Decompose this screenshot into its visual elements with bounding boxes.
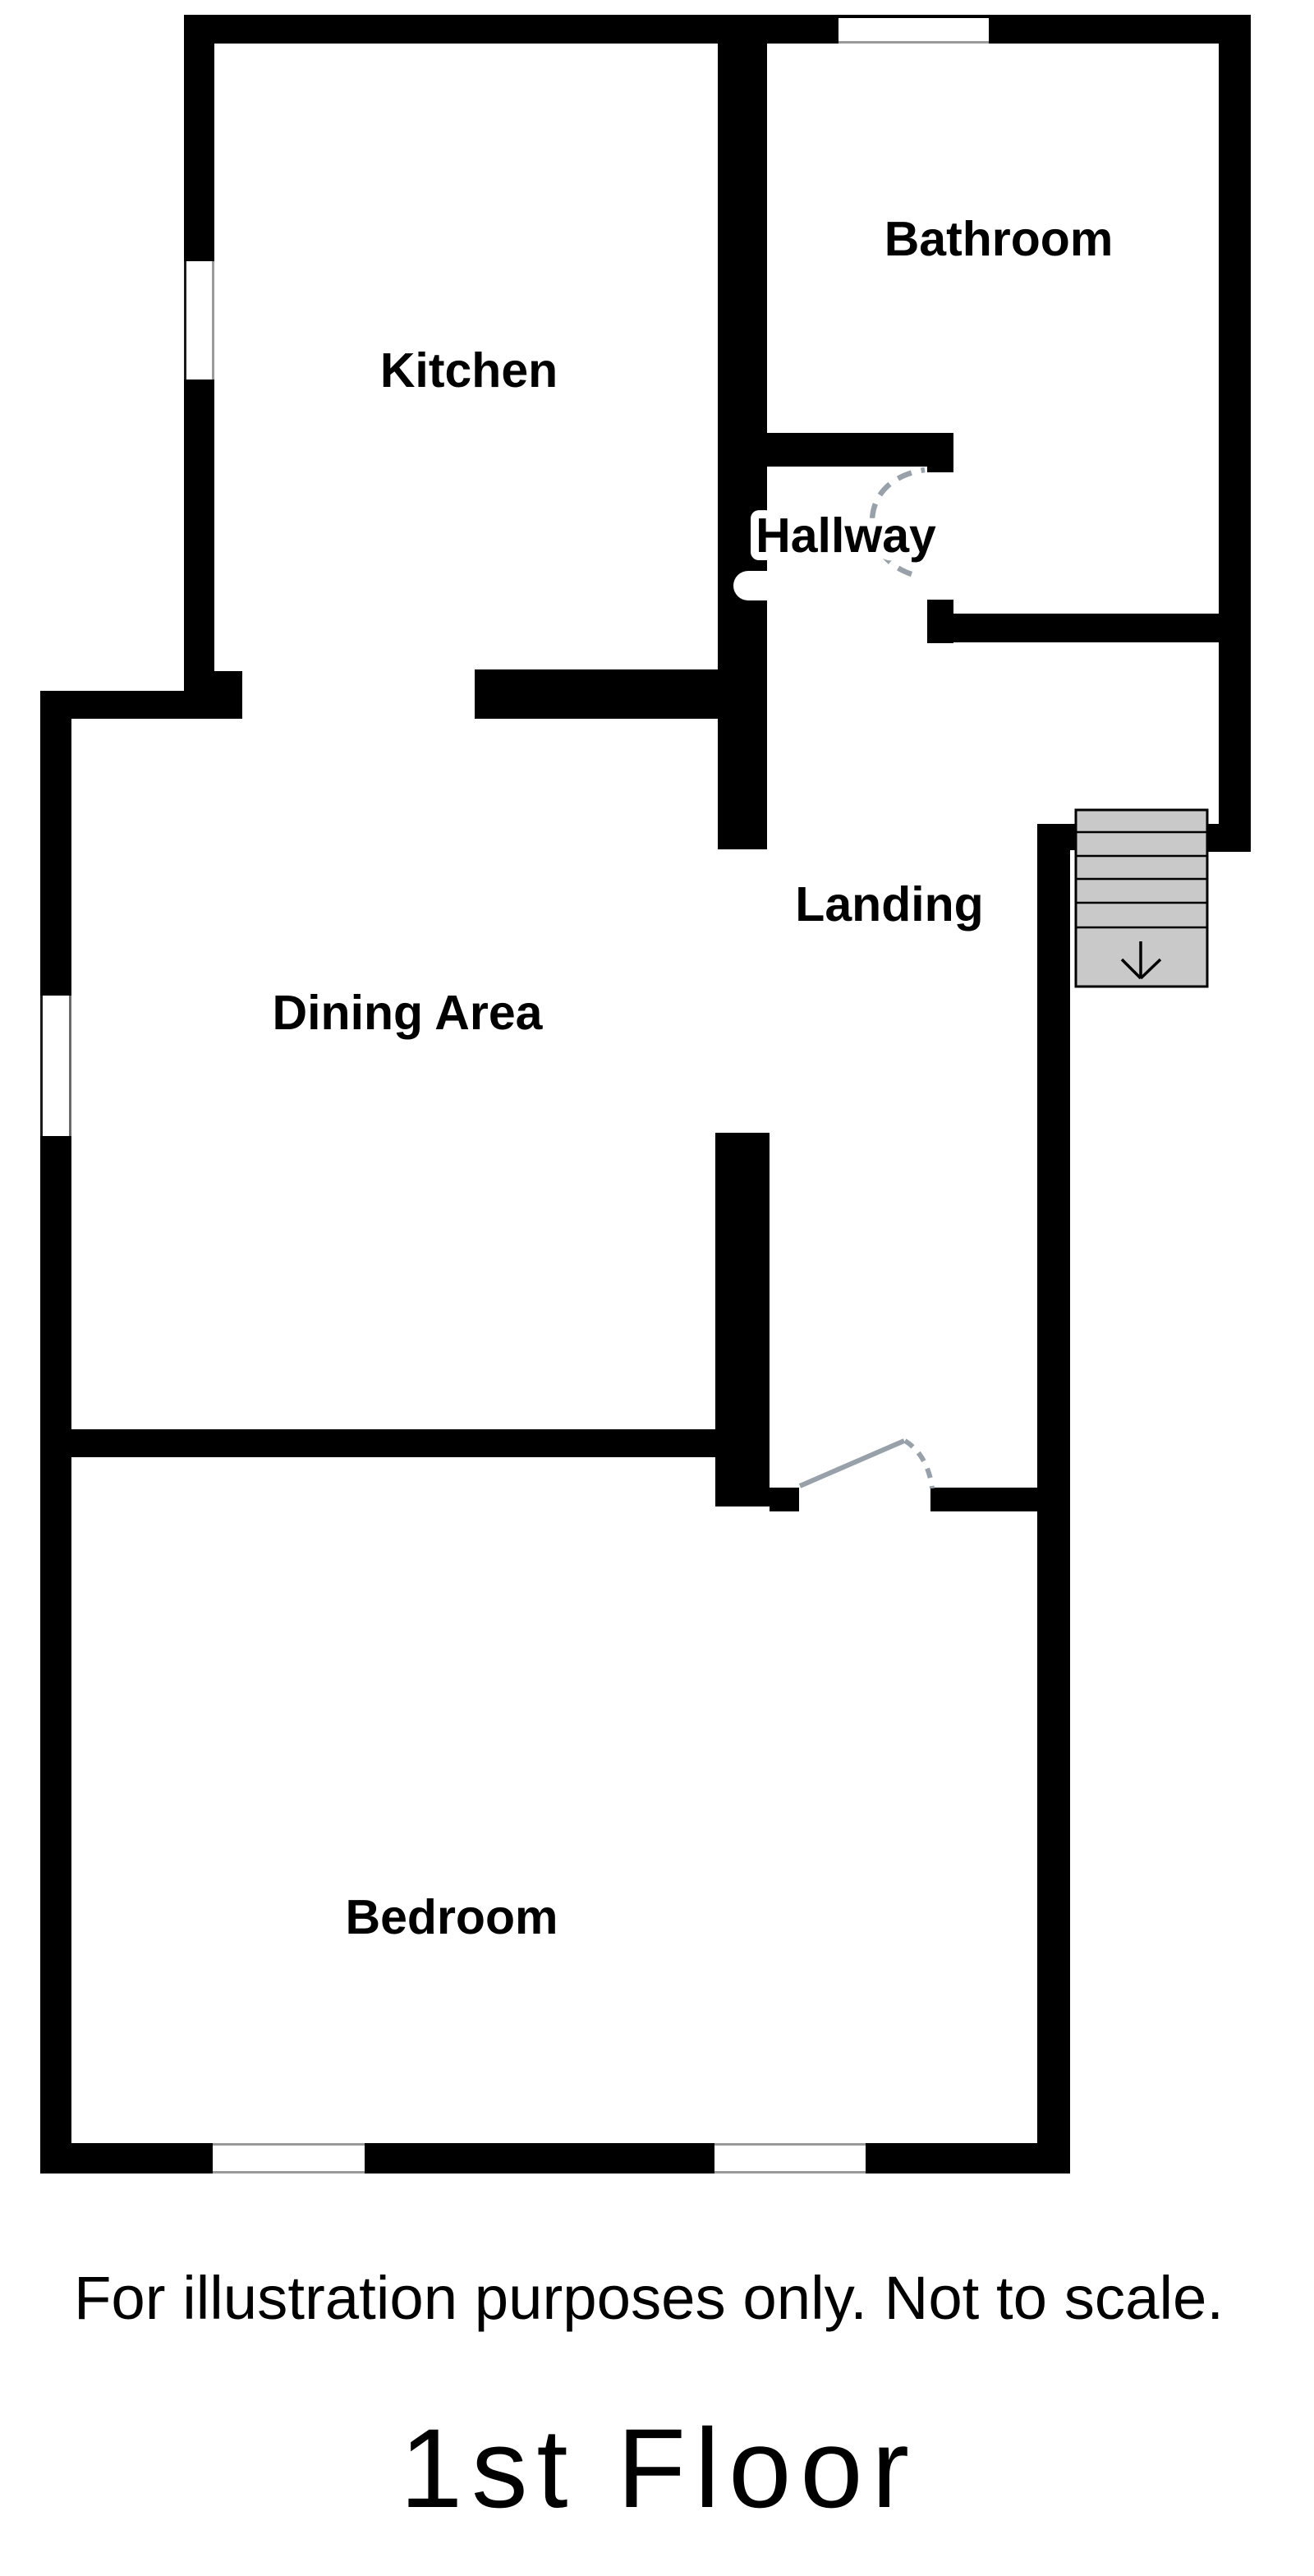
svg-text:For illustration purposes only: For illustration purposes only. Not to s… <box>74 2264 1224 2332</box>
svg-text:1st Floor: 1st Floor <box>400 2406 909 2532</box>
svg-text:Bathroom: Bathroom <box>884 212 1114 266</box>
svg-text:Kitchen: Kitchen <box>380 343 558 398</box>
svg-text:Hallway: Hallway <box>756 508 936 563</box>
svg-text:Landing: Landing <box>795 877 983 931</box>
svg-text:Bedroom: Bedroom <box>346 1890 558 1944</box>
svg-text:Dining Area: Dining Area <box>273 986 544 1040</box>
